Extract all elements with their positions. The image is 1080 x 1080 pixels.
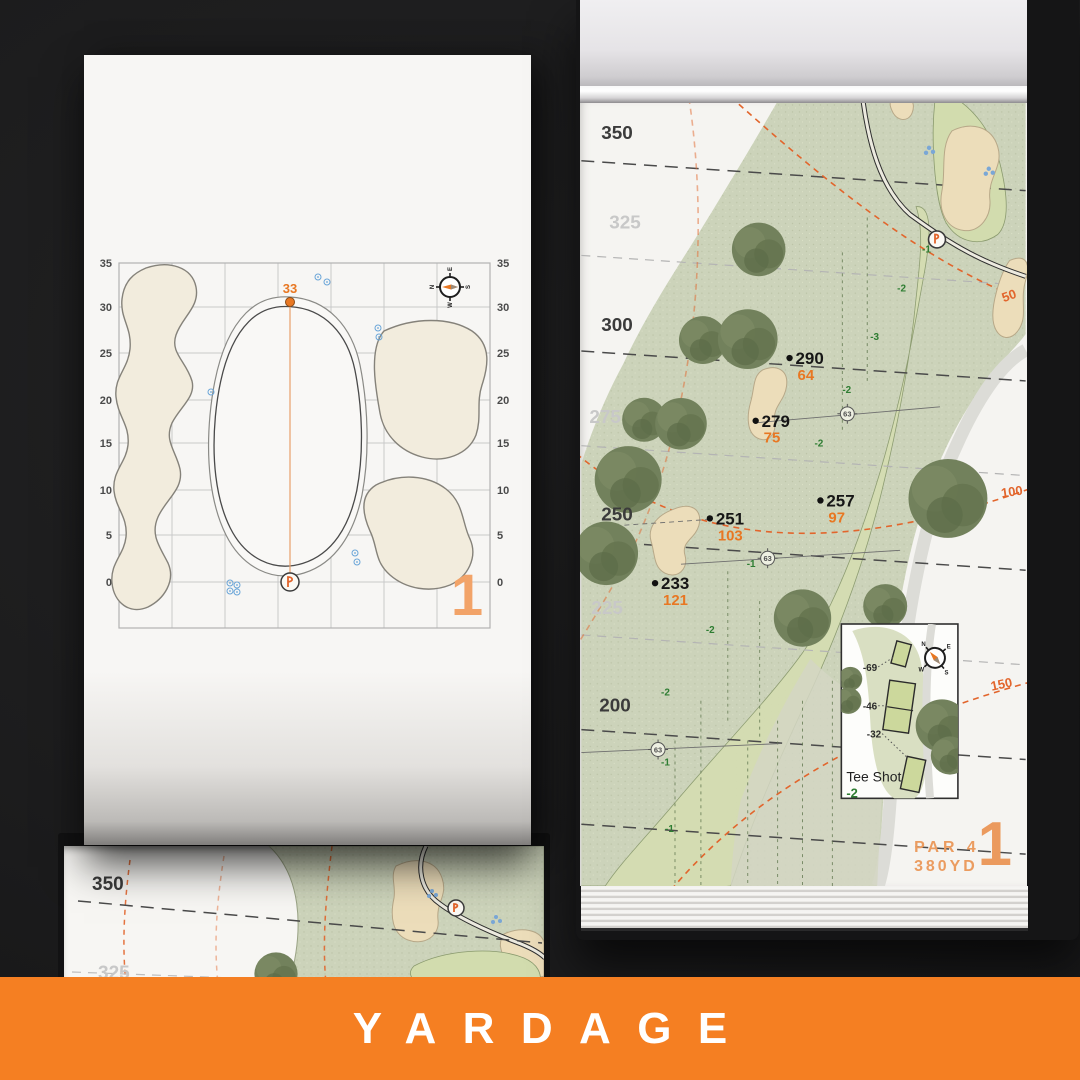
svg-text:290: 290 [796,349,824,368]
lower-left-hole-map: 350 325 [64,846,544,984]
axis-labels-left: 35 30 25 20 15 10 5 0 [100,258,112,589]
svg-text:63: 63 [763,554,771,563]
svg-text:97: 97 [828,509,845,526]
svg-text:350: 350 [601,123,633,144]
svg-text:10: 10 [100,485,112,497]
svg-text:N: N [921,642,925,648]
svg-text:300: 300 [601,315,633,336]
svg-text:100: 100 [1000,483,1023,501]
svg-text:250: 250 [601,504,633,525]
svg-text:-32: -32 [867,730,882,741]
yardage-banner: YARDAGE [0,977,1080,1080]
svg-text:75: 75 [764,430,781,447]
svg-text:5: 5 [106,530,112,542]
svg-text:15: 15 [100,438,112,450]
right-book-binding-roll [580,86,1027,103]
mockup-stage: 350 325 35 30 25 20 15 10 5 0 3 [0,0,1080,1080]
svg-text:257: 257 [826,491,854,510]
svg-text:35: 35 [100,258,112,270]
svg-text:-2: -2 [897,283,906,294]
svg-text:-1: -1 [922,244,931,255]
green-detail-map: 35 30 25 20 15 10 5 0 35 30 25 20 15 10 … [84,55,531,845]
svg-text:5: 5 [497,530,503,542]
svg-text:-1: -1 [661,757,670,768]
hole-info: PAR 4 380YD 1 [914,810,1012,879]
svg-text:W: W [448,302,454,308]
svg-text:225: 225 [591,598,623,619]
svg-text:-69: -69 [863,663,878,674]
svg-text:S: S [945,671,949,677]
svg-text:-2: -2 [706,625,715,636]
tee-shot-title: Tee Shot [846,768,901,784]
svg-text:-1: -1 [747,559,756,570]
svg-text:E: E [947,644,951,650]
band-label-350: 350 [92,874,124,895]
tee-shot-inset: -69 -46 -32 Tee Shot -2 N E [835,624,969,801]
right-book-page-stack [581,886,1028,931]
svg-text:63: 63 [654,745,662,754]
svg-text:200: 200 [599,696,631,717]
flag-icon [281,573,299,591]
tee-shot-elevation: -2 [846,785,858,800]
svg-text:150: 150 [989,675,1013,694]
svg-text:325: 325 [609,213,641,234]
svg-text:20: 20 [497,395,509,407]
svg-text:10: 10 [497,485,509,497]
svg-text:233: 233 [661,574,689,593]
left-book-lower-page: 350 325 [64,846,544,984]
svg-text:63: 63 [843,410,851,419]
svg-text:121: 121 [663,592,688,609]
svg-text:30: 30 [497,302,509,314]
svg-text:279: 279 [762,412,790,431]
svg-text:-2: -2 [661,688,670,699]
par-label: PAR 4 [914,839,980,856]
svg-text:-1: -1 [665,824,674,835]
svg-text:-46: -46 [863,702,878,713]
svg-text:35: 35 [497,258,509,270]
svg-text:0: 0 [106,577,112,589]
left-book-top-page: 35 30 25 20 15 10 5 0 35 30 25 20 15 10 … [84,55,531,845]
svg-text:30: 30 [100,302,112,314]
right-book-map-page: 63 63 63 350 325 300 275 250 [580,103,1027,886]
svg-text:S: S [466,285,472,289]
svg-text:20: 20 [100,395,112,407]
svg-text:251: 251 [716,509,744,528]
right-book-flipped-page [580,0,1027,90]
svg-text:0: 0 [497,577,503,589]
svg-text:-3: -3 [870,332,879,343]
flag-icon [448,900,464,916]
green-outline [209,297,368,576]
hole-number: 1 [978,810,1012,879]
svg-text:25: 25 [497,348,509,360]
svg-text:103: 103 [718,527,743,544]
svg-text:-2: -2 [814,439,823,450]
svg-text:25: 25 [100,348,112,360]
hole-map: 63 63 63 350 325 300 275 250 [580,103,1027,886]
svg-text:15: 15 [497,438,509,450]
svg-text:64: 64 [798,367,815,384]
flag-icon [929,231,946,248]
svg-text:N: N [430,285,436,289]
svg-text:-2: -2 [842,385,851,396]
svg-text:E: E [448,267,454,271]
yardage-label: 380YD [914,858,978,875]
svg-text:W: W [918,667,924,673]
banner-title: YARDAGE [326,1004,753,1054]
svg-text:275: 275 [589,407,621,428]
pin-depth-label: 33 [283,281,297,296]
axis-labels-right: 35 30 25 20 15 10 5 0 [497,258,509,589]
page-number: 1 [451,563,483,628]
compass-icon: N E S W [430,267,472,308]
